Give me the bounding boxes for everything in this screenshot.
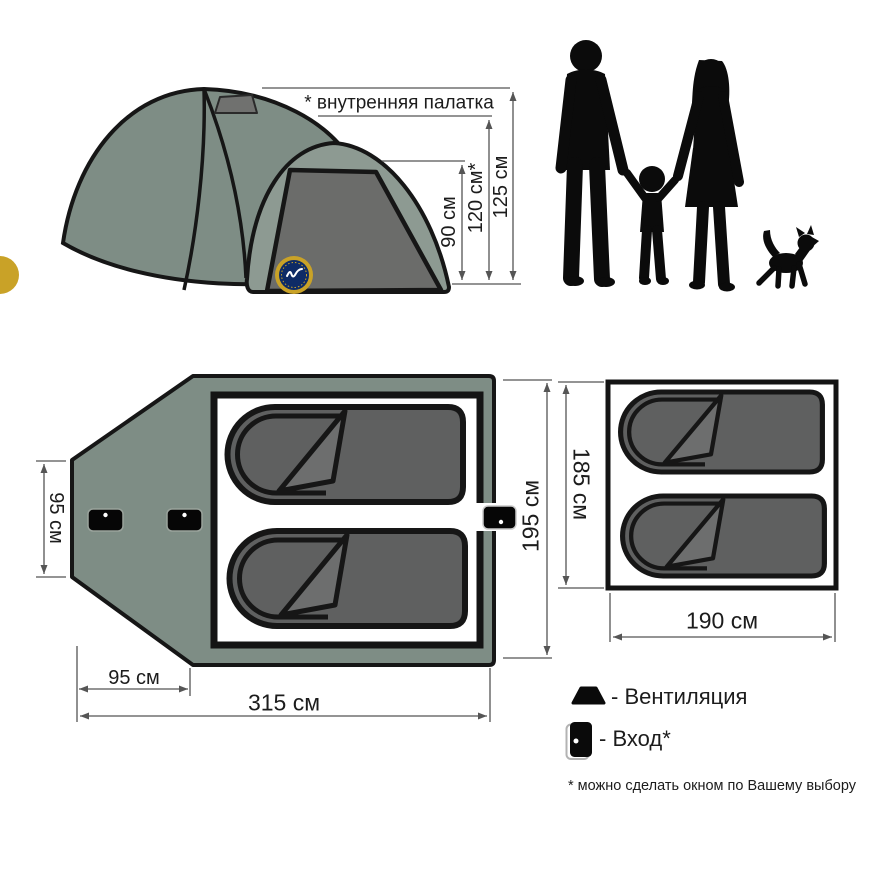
door-icon bbox=[167, 509, 202, 531]
legend-footnote: * можно сделать окном по Вашему выбору bbox=[568, 779, 856, 794]
vent-trapezoid-icon bbox=[573, 688, 604, 703]
legend-ventilation-label: - Вентиляция bbox=[611, 686, 747, 708]
inner-width-label: 185 см bbox=[570, 448, 593, 520]
door-icon bbox=[88, 509, 123, 531]
height-label-125: 125 см bbox=[491, 156, 511, 219]
dog-silhouette bbox=[759, 225, 819, 286]
door-icon bbox=[483, 506, 516, 529]
family-silhouette-icon bbox=[561, 40, 819, 292]
tent-side-view bbox=[0, 88, 521, 294]
man-silhouette bbox=[561, 40, 623, 287]
height-label-90: 90 см bbox=[439, 196, 459, 248]
height-label-120: 120 см* bbox=[466, 163, 486, 233]
vestibule-depth-label: 95 см bbox=[108, 668, 160, 688]
diagram-graphics bbox=[0, 0, 875, 875]
inner-tent-plan bbox=[558, 382, 836, 642]
total-length-label: 315 см bbox=[248, 692, 320, 715]
tent-dimensions-diagram: * внутренняя палатка 90 см 120 см* 125 с… bbox=[0, 0, 875, 875]
inner-tent-annotation: * внутренняя палатка bbox=[304, 94, 494, 113]
legend-entrance-label: - Вход* bbox=[599, 728, 671, 750]
sleeping-bag-icon bbox=[621, 392, 823, 472]
sleeping-bag-icon bbox=[623, 496, 825, 576]
sleeping-bag-icon bbox=[230, 531, 466, 626]
door-icon bbox=[567, 722, 593, 759]
sleeping-bag-icon bbox=[228, 407, 464, 502]
woman-silhouette bbox=[678, 59, 739, 292]
tent-width-label: 195 см bbox=[520, 480, 543, 552]
vestibule-width-label: 95 см bbox=[46, 492, 66, 544]
child-silhouette bbox=[627, 166, 675, 285]
vent-trapezoid-icon bbox=[215, 95, 257, 113]
inner-length-label: 190 см bbox=[686, 610, 758, 633]
